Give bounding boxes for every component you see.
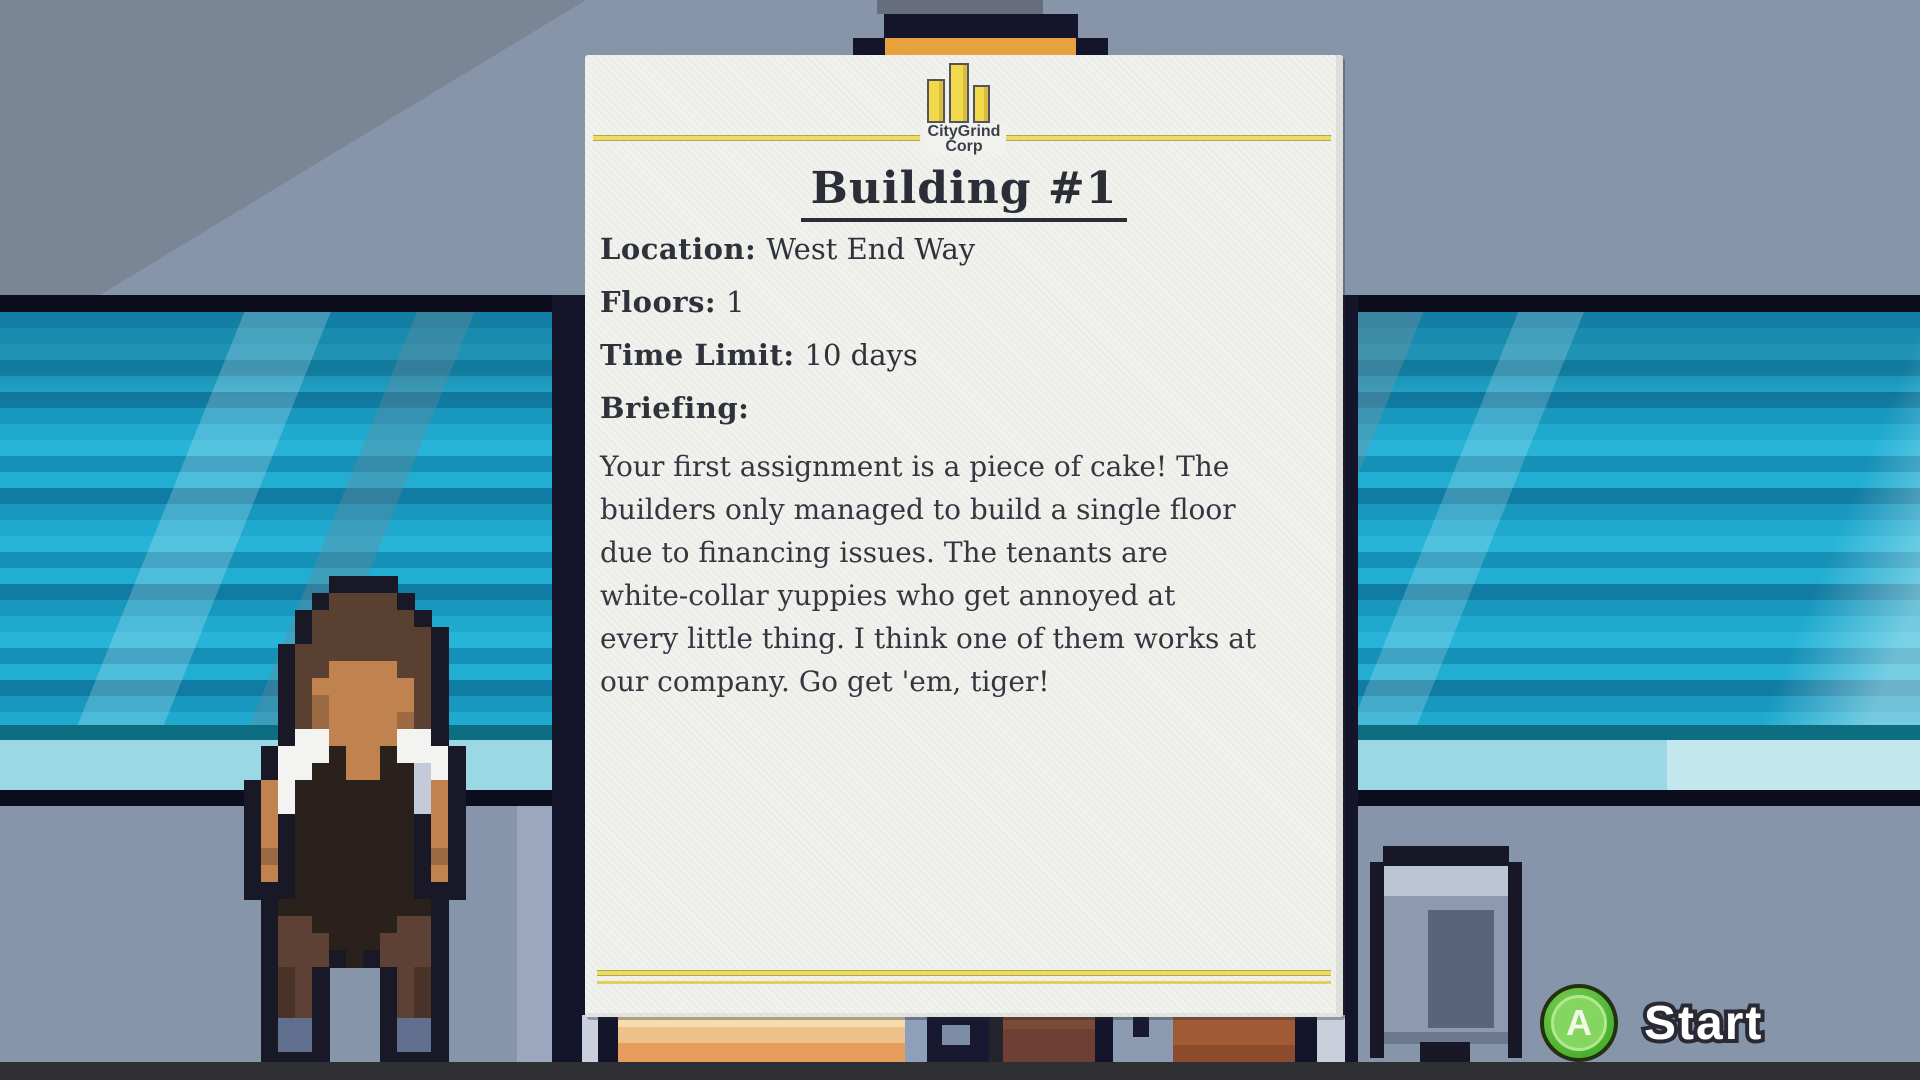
desk [618, 1015, 905, 1062]
pixel-character [244, 576, 465, 1069]
logo-bars-icon [919, 63, 1009, 123]
trash-can [1384, 866, 1508, 1044]
briefing-line: builders only managed to build a single … [600, 488, 1335, 531]
furniture-block [582, 1015, 598, 1062]
trash-can-rim [1384, 866, 1508, 896]
briefing-line: Your first assignment is a piece of cake… [600, 445, 1335, 488]
floor [0, 1062, 1920, 1080]
logo-bar-icon [927, 79, 945, 123]
gamepad-a-letter: A [1566, 1002, 1592, 1044]
game-scene: CityGrind Corp Building #1 Location:West… [0, 0, 1920, 1080]
gamepad-a-button-inner: A [1551, 995, 1607, 1051]
furniture-block [1317, 1015, 1345, 1062]
meta-row-time-limit: Time Limit:10 days [600, 339, 1330, 372]
furniture-block [989, 1015, 1003, 1062]
start-button[interactable]: A Start [1540, 984, 1763, 1062]
easel-clip-bar [884, 14, 1078, 40]
accent-line [597, 970, 1331, 976]
trash-can-foot [1420, 1042, 1470, 1062]
gamepad-a-button-icon[interactable]: A [1540, 984, 1618, 1062]
meta-label: Time Limit: [600, 338, 795, 372]
company-name-line2: Corp [928, 139, 1001, 154]
wall-column [517, 806, 552, 1062]
start-label: Start [1644, 996, 1763, 1051]
window-frame-top [0, 295, 552, 312]
meta-row-briefing-label: Briefing: [600, 392, 1330, 425]
window-band-reflection [1358, 740, 1920, 790]
window-band-teal [1358, 725, 1920, 740]
company-logo: CityGrind Corp [585, 63, 1343, 155]
window-sill [1358, 790, 1920, 806]
office-chair [927, 1015, 989, 1062]
company-name: CityGrind Corp [922, 124, 1007, 154]
easel-clip-top [877, 0, 1043, 14]
logo-bar-icon [949, 63, 969, 123]
meta-value: West End Way [766, 232, 975, 266]
briefing-text: Your first assignment is a piece of cake… [600, 445, 1335, 703]
briefing-line: due to financing issues. The tenants are [600, 531, 1335, 574]
furniture-block [1095, 1015, 1113, 1062]
meta-label: Briefing: [600, 391, 749, 425]
meta-label: Location: [600, 232, 756, 266]
furniture-block [905, 1015, 927, 1062]
meta-value: 1 [726, 285, 744, 319]
office-window-right [1358, 295, 1920, 806]
mission-title: Building #1 [585, 163, 1343, 222]
trash-can-lid [1383, 846, 1509, 866]
desk-wood [1173, 1015, 1295, 1062]
trash-can-edge [1508, 862, 1522, 1058]
easel-board-edge [578, 398, 584, 444]
accent-line [597, 981, 1331, 984]
meta-value: 10 days [805, 338, 918, 372]
meta-row-location: Location:West End Way [600, 233, 1330, 266]
briefing-card: CityGrind Corp Building #1 Location:West… [585, 55, 1343, 1017]
window-frame-top [1358, 295, 1920, 312]
trash-can-edge [1370, 862, 1384, 1058]
furniture-block [598, 1015, 618, 1062]
furniture-block [1295, 1015, 1317, 1062]
trash-can-shadow [1428, 910, 1494, 1028]
meta-row-floors: Floors:1 [600, 286, 1330, 319]
briefing-line: our company. Go get 'em, tiger! [600, 660, 1335, 703]
logo-bar-icon [973, 85, 990, 123]
company-name-line1: CityGrind [928, 124, 1001, 139]
briefing-line: every little thing. I think one of them … [600, 617, 1335, 660]
meta-label: Floors: [600, 285, 716, 319]
briefing-line: white-collar yuppies who get annoyed at [600, 574, 1335, 617]
window-glass [1358, 312, 1920, 725]
furniture-block [1113, 1015, 1173, 1062]
mission-meta: Location:West End Way Floors:1 Time Limi… [600, 233, 1330, 445]
office-chair-brown [1003, 1015, 1095, 1062]
